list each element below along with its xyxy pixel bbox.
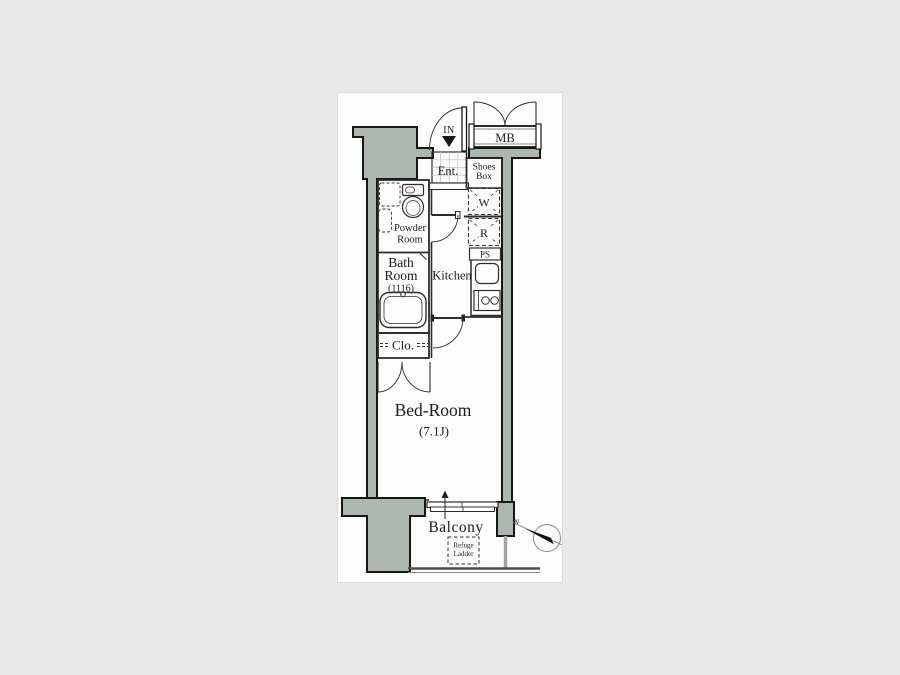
closet-doors xyxy=(378,362,430,392)
powder-room-label-2: Room xyxy=(397,235,423,246)
bathtub xyxy=(380,292,426,327)
bath-label-2: Room xyxy=(384,268,418,283)
kitchen-counter xyxy=(471,260,502,316)
balcony-label: Balcony xyxy=(428,519,483,536)
balcony-window xyxy=(427,502,498,512)
stove-burner-2 xyxy=(491,297,499,305)
meter-box-label: MB xyxy=(495,131,514,145)
vanity-counter xyxy=(380,183,401,206)
bedroom-size-label: (7.1J) xyxy=(419,424,449,439)
compass xyxy=(513,523,562,552)
compass-needle xyxy=(525,529,554,545)
entrance-in-arrow-icon xyxy=(442,136,456,147)
entrance-in-label: IN xyxy=(443,125,455,136)
entrance-label: Ent. xyxy=(438,164,458,178)
stove-burner-1 xyxy=(482,297,490,305)
washbasin xyxy=(379,209,392,232)
page-background: { "plan": { "type": "apartment-floor-pla… xyxy=(0,0,900,675)
bath-door-mark xyxy=(420,254,427,260)
hall-door xyxy=(432,212,461,243)
floor-plan-card: IN MB Ent. Shoes Box W R PS xyxy=(337,92,563,583)
powder-room-label-1: Powder xyxy=(394,223,427,234)
kitchen-door xyxy=(431,315,466,349)
floor-plan: IN MB Ent. Shoes Box W R PS xyxy=(338,93,562,582)
washer-label: W xyxy=(478,196,490,210)
kitchen-sink xyxy=(476,264,499,284)
refuge-ladder-label-2: Ladder xyxy=(454,550,474,558)
pillar-bottom-left xyxy=(342,498,425,572)
entrance-step xyxy=(430,183,469,190)
bedroom-label: Bed-Room xyxy=(395,400,472,420)
wall-end-post xyxy=(497,502,514,536)
compass-north-label: N xyxy=(513,518,520,527)
refuge-ladder-label-1: Refuge xyxy=(453,542,473,550)
toilet xyxy=(403,185,424,218)
kitchen-label: Kitchen xyxy=(432,269,472,283)
pipe-space-label: PS xyxy=(480,250,490,260)
shoes-box-label-2: Box xyxy=(476,172,492,182)
closet-label: Clo. xyxy=(392,338,414,353)
kitchen-stove xyxy=(474,291,500,311)
fridge-label: R xyxy=(480,226,488,240)
shoes-box-label-1: Shoes xyxy=(473,163,496,173)
